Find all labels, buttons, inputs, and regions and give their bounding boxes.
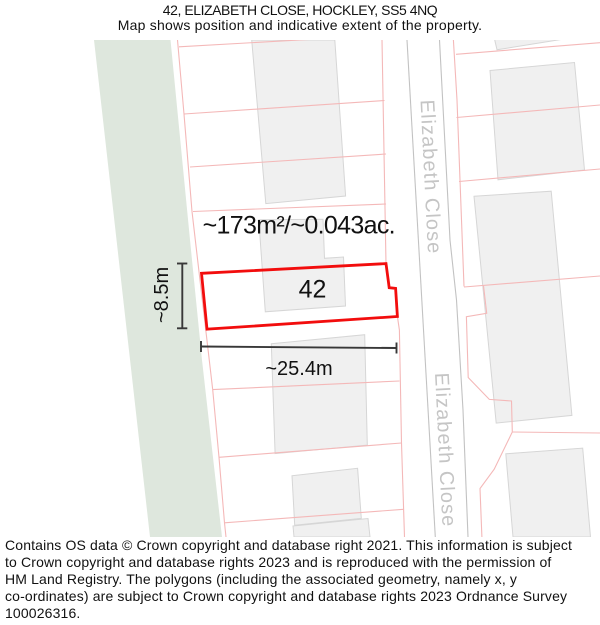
svg-text:~8.5m: ~8.5m bbox=[151, 267, 173, 323]
svg-text:~173m²/~0.043ac.: ~173m²/~0.043ac. bbox=[203, 212, 395, 240]
svg-text:42: 42 bbox=[299, 276, 327, 304]
svg-text:~25.4m: ~25.4m bbox=[265, 358, 332, 380]
